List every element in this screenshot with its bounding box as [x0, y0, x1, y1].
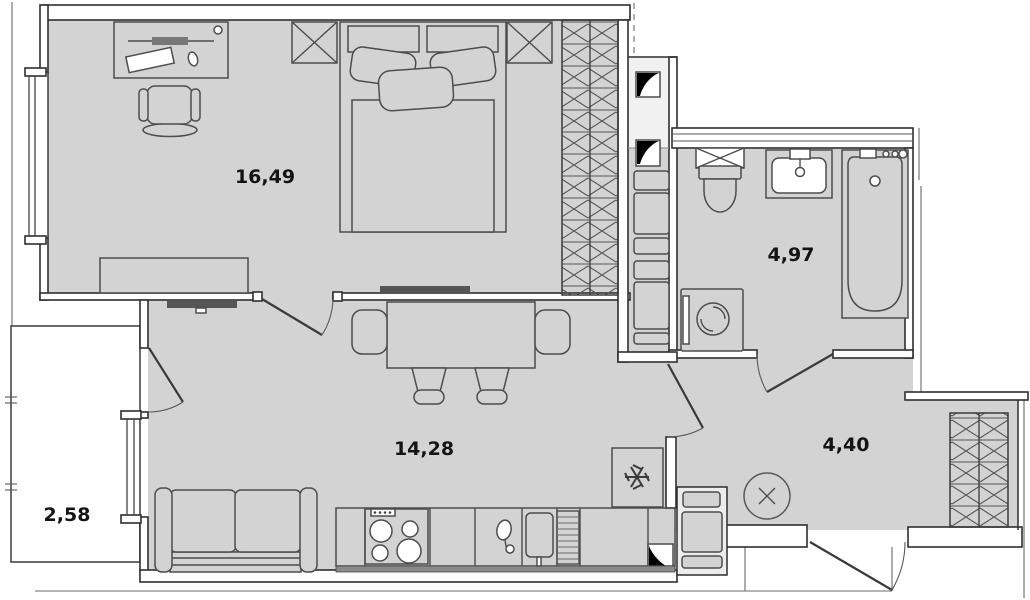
tv	[380, 286, 470, 294]
door-jamb	[333, 292, 342, 301]
wall-kitchen-hall-side	[666, 437, 676, 508]
chair	[475, 368, 509, 404]
nightstand	[292, 22, 337, 63]
hallway-area-label: 4,40	[823, 434, 870, 456]
wall-living-left-upper	[140, 300, 148, 348]
washbasin	[766, 149, 832, 198]
balcony-outline	[11, 326, 140, 562]
bathtub	[842, 149, 908, 318]
wall-left-lower	[40, 238, 48, 300]
low-cabinet	[100, 258, 248, 293]
sofa	[155, 488, 317, 572]
vent-shaft-icon	[636, 72, 660, 97]
living-kitchen-area-label: 14,28	[394, 438, 454, 460]
wall-bathroom-top	[672, 128, 913, 148]
door-jamb	[253, 292, 262, 301]
desk	[114, 22, 228, 78]
chair	[412, 368, 446, 404]
riser-ducts	[677, 487, 727, 575]
floor-plan-canvas: 16,49 4,97 14,28 4,40 2,58	[0, 0, 1030, 600]
wall-bedroom-bottom-left	[40, 293, 260, 300]
wardrobe	[950, 413, 1008, 527]
nightstand	[507, 22, 552, 63]
wall-top	[43, 5, 630, 20]
armchair	[352, 310, 387, 354]
vent-grille	[696, 148, 744, 168]
entrance-door	[810, 542, 905, 590]
refrigerator	[612, 448, 663, 507]
wall-entry-left	[723, 525, 807, 547]
wall-kitchen-hall-top	[618, 352, 677, 362]
wall-left-upper	[40, 5, 48, 72]
bedroom-window	[25, 68, 46, 244]
wall-shaft-right	[669, 57, 677, 352]
double-bed	[340, 22, 506, 232]
wall-shaft-left	[618, 20, 628, 362]
wall-living-left-lower	[140, 517, 148, 572]
balcony-area-label: 2,58	[44, 504, 91, 526]
wall-entry-right	[908, 527, 1022, 547]
office-chair	[139, 86, 200, 137]
wall-niche-top	[905, 392, 1028, 400]
vent-shaft-icon	[636, 140, 660, 166]
floor-plan: 16,49 4,97 14,28 4,40 2,58	[0, 0, 1030, 600]
bedroom-area-label: 16,49	[235, 166, 295, 188]
wardrobe	[562, 20, 618, 295]
armchair	[535, 310, 570, 354]
washing-machine	[681, 289, 743, 351]
wall-bathroom-bottom-right	[833, 350, 913, 358]
shaft-floor-upper	[628, 57, 669, 148]
bathroom-area-label: 4,97	[768, 244, 815, 266]
